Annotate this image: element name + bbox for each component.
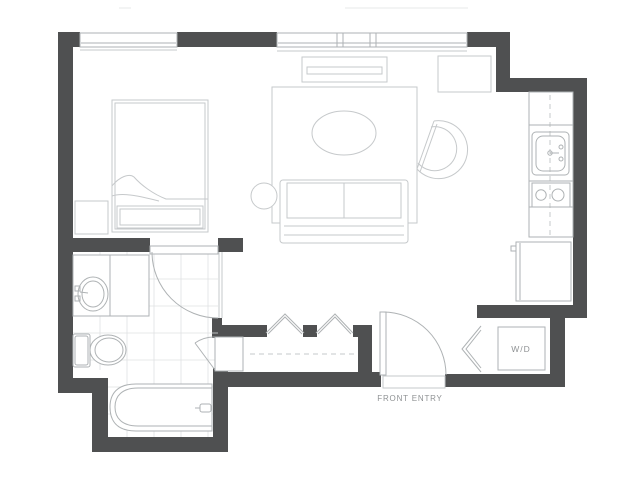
kitchen	[511, 92, 573, 301]
bifold-door-left	[266, 314, 304, 334]
tv-console	[302, 57, 387, 82]
side-table	[251, 183, 277, 209]
linen-closet	[195, 337, 243, 371]
washer-dryer-label: W/D	[511, 344, 531, 354]
front-door	[380, 312, 446, 388]
sofa	[280, 180, 408, 243]
stove	[532, 183, 570, 207]
entry: W/D FRONT ENTRY	[377, 312, 545, 403]
lounge-chair	[417, 121, 468, 179]
vanity	[73, 255, 149, 316]
floor-plan: W/D FRONT ENTRY	[0, 0, 640, 480]
bifold-door-right	[316, 314, 353, 334]
bedroom	[75, 100, 208, 234]
toilet	[73, 334, 126, 367]
bathtub	[110, 384, 212, 431]
washer-dryer-closet: W/D	[462, 326, 545, 372]
living-room	[251, 56, 491, 243]
bed	[112, 100, 208, 232]
living-room-window	[277, 33, 467, 51]
door-jamb-lines	[219, 252, 222, 318]
refrigerator	[511, 242, 571, 301]
nightstand	[75, 201, 108, 234]
door-threshold	[383, 376, 445, 388]
cabinet	[438, 56, 491, 92]
front-entry-label: FRONT ENTRY	[377, 394, 442, 403]
coffee-table	[312, 111, 376, 155]
bedroom-window	[80, 33, 177, 50]
